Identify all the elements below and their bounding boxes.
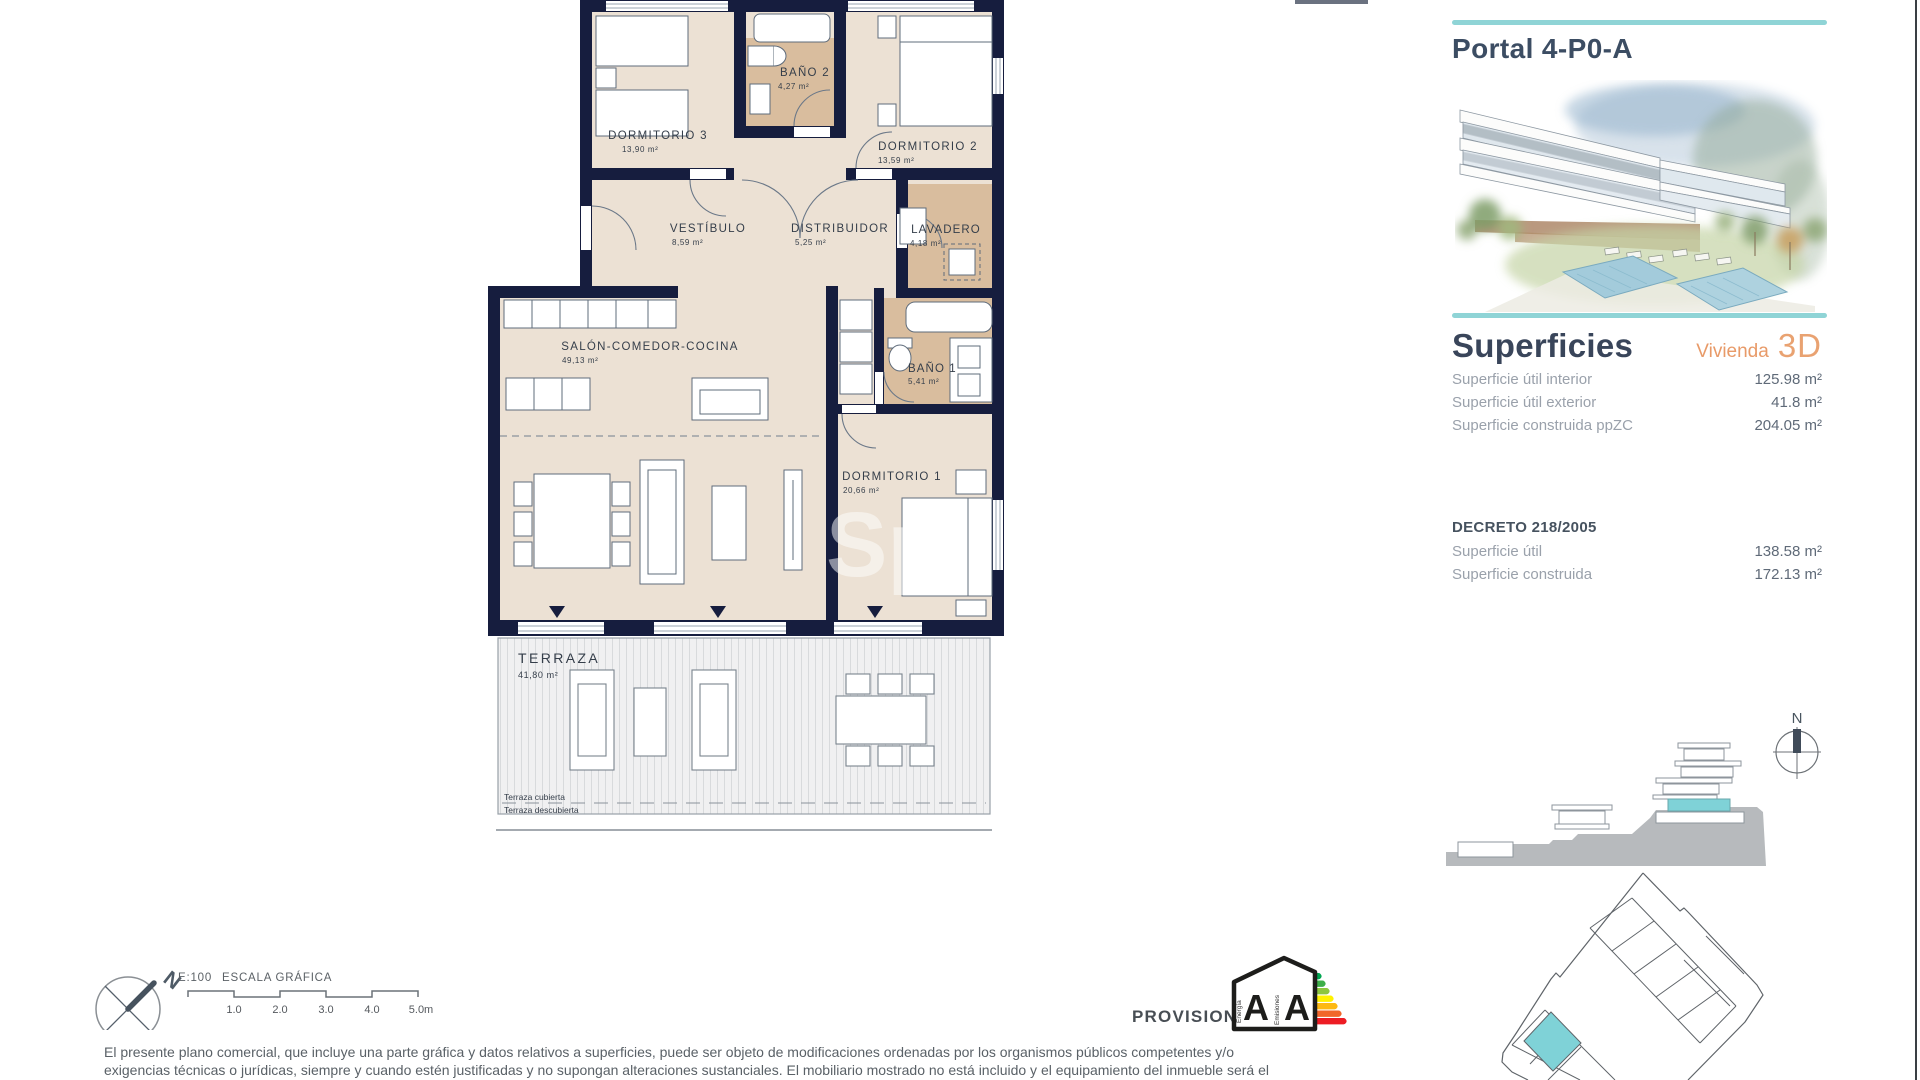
north-letter: N [1792, 710, 1803, 727]
watermark: Sp [826, 494, 944, 596]
superficie-construida-ppzc-value: 204.05 m² [1754, 417, 1822, 434]
highlighted-unit [1524, 1012, 1581, 1071]
north-compass-icon: N [1773, 710, 1821, 779]
terrace [496, 638, 992, 830]
room-area-salon: 49,13 m² [562, 356, 598, 365]
room-area-distribuidor: 5,25 m² [795, 238, 826, 247]
superficie-util-interior-label: Superficie útil interior [1452, 371, 1592, 388]
floor-plan: Sp DORMITORIO 3 13,90 m² BAÑO 2 4,27 m² … [488, 0, 1008, 836]
terrace-covered-label: Terraza cubierta [504, 792, 565, 802]
decreto-construida-value: 172.13 m² [1754, 566, 1822, 583]
terrace-uncovered-label: Terraza descubierta [504, 805, 579, 815]
scale-tick-5: 5.0m [409, 1004, 433, 1016]
site-plan [1480, 868, 1916, 1080]
room-area-dormitorio-1: 20,66 m² [843, 486, 879, 495]
floorplan-document-page: Sp DORMITORIO 3 13,90 m² BAÑO 2 4,27 m² … [0, 0, 1920, 1080]
decreto-construida-label: Superficie construida [1452, 566, 1592, 583]
superficies-heading: Superficies [1452, 327, 1633, 365]
highlighted-floor [1668, 799, 1730, 811]
superficie-row: Superficie útil exterior 41.8 m² [1452, 394, 1822, 417]
room-label-lavadero: LAVADERO [911, 224, 981, 236]
decreto-util-label: Superficie útil [1452, 543, 1542, 560]
scale-title: ESCALA GRÁFICA [222, 971, 332, 984]
unit-title: Portal 4-P0-A [1452, 33, 1633, 65]
room-label-salon: SALÓN-COMEDOR-COCINA [561, 340, 738, 353]
room-area-dormitorio-3: 13,90 m² [622, 145, 658, 154]
room-area-lavadero: 4,18 m² [910, 239, 941, 248]
site-section-drawing: N [1440, 706, 1910, 868]
panel-divider-middle [1452, 313, 1827, 318]
legal-disclaimer: El presente plano comercial, que incluye… [104, 1044, 1434, 1079]
room-label-bano-2: BAÑO 2 [780, 66, 830, 79]
energy-certificate-icon: A A Energía Emisiones [1228, 953, 1354, 1035]
scale-tick-1: 1.0 [226, 1004, 241, 1016]
room-label-distribuidor: DISTRIBUIDOR [791, 223, 889, 235]
room-label-dormitorio-2: DORMITORIO 2 [878, 141, 978, 153]
top-edge-artifact [1295, 0, 1368, 4]
compass-rose-icon: N [96, 967, 185, 1030]
room-area-bano-1: 5,41 m² [908, 377, 939, 386]
disclaimer-line-2: exigencias técnicas o jurídicas, siempre… [104, 1062, 1434, 1080]
room-label-dormitorio-3: DORMITORIO 3 [608, 130, 708, 142]
decreto-row: Superficie útil 138.58 m² [1452, 543, 1822, 566]
energy-energia-label: Energía [1236, 1000, 1243, 1023]
superficies-header: Superficies Vivienda 3D [1452, 327, 1828, 365]
scale-tick-4: 4.0 [364, 1004, 379, 1016]
superficie-util-interior-value: 125.98 m² [1754, 371, 1822, 388]
room-area-bano-2: 4,27 m² [778, 82, 809, 91]
vivienda-label: Vivienda [1696, 341, 1769, 363]
superficie-construida-ppzc-label: Superficie construida ppZC [1452, 417, 1633, 434]
decreto-heading: DECRETO 218/2005 [1452, 519, 1597, 536]
superficie-util-exterior-value: 41.8 m² [1771, 394, 1822, 411]
energy-emisiones-label: Emisiones [1274, 994, 1281, 1025]
page-right-border [1915, 0, 1917, 1080]
decreto-util-value: 138.58 m² [1754, 543, 1822, 560]
superficie-row: Superficie útil interior 125.98 m² [1452, 371, 1822, 394]
energy-letter-emisiones: A [1284, 987, 1310, 1028]
vivienda-value: 3D [1778, 327, 1822, 365]
building-rendering [1455, 80, 1827, 312]
scale-tick-labels: 1.0 2.0 3.0 4.0 5.0m [226, 1004, 433, 1016]
scale-ratio: E:100 [178, 972, 212, 984]
room-label-vestibulo: VESTÍBULO [670, 222, 746, 235]
disclaimer-line-1: El presente plano comercial, que incluye… [104, 1044, 1434, 1062]
decreto-row: Superficie construida 172.13 m² [1452, 566, 1822, 589]
room-label-dormitorio-1: DORMITORIO 1 [842, 471, 942, 483]
room-area-dormitorio-2: 13,59 m² [878, 156, 914, 165]
scale-tick-3: 3.0 [318, 1004, 333, 1016]
room-area-vestibulo: 8,59 m² [672, 238, 703, 247]
energy-letter-energia: A [1243, 987, 1269, 1028]
superficie-row: Superficie construida ppZC 204.05 m² [1452, 417, 1822, 440]
room-label-terraza: TERRAZA [518, 650, 600, 666]
scale-and-compass: N E:100 ESCALA GRÁFICA 1.0 2.0 3.0 4.0 5… [90, 960, 440, 1030]
panel-divider-top [1452, 20, 1827, 25]
scale-bar [188, 991, 418, 997]
room-label-bano-1: BAÑO 1 [908, 362, 957, 375]
superficie-util-exterior-label: Superficie útil exterior [1452, 394, 1596, 411]
room-area-terraza: 41,80 m² [518, 670, 558, 680]
scale-tick-2: 2.0 [272, 1004, 287, 1016]
